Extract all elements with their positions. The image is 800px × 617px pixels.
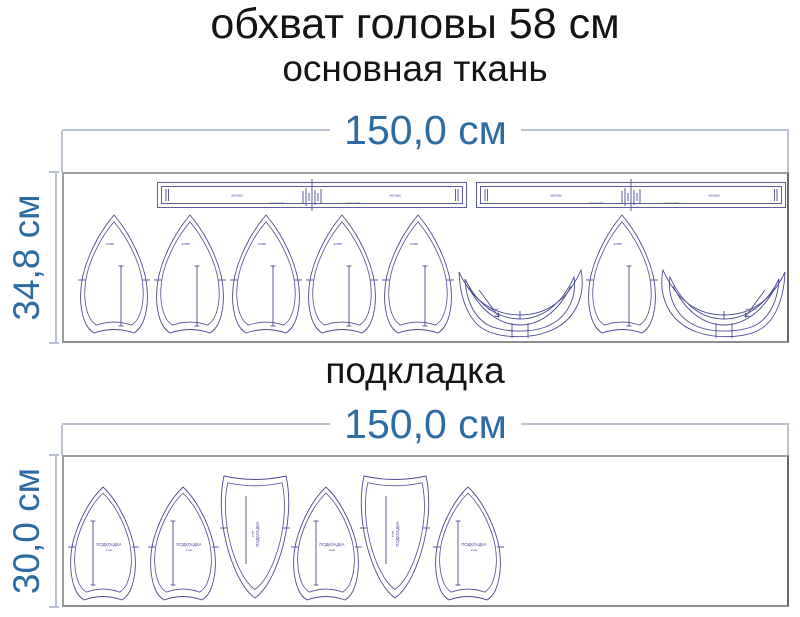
lining-wedge-piece: [433, 487, 504, 600]
extension-line: [61, 131, 63, 172]
visor-piece: [459, 270, 582, 338]
width-dimension-main: 150,0 см: [62, 106, 789, 154]
lining-drawing: ПОДКЛАДКА клин клин ПОДКЛАДКА: [64, 457, 787, 605]
main-fabric-drawing: околыш околыш линия сгиба линия сгиба кл…: [64, 174, 787, 341]
wedge-piece: [154, 215, 226, 333]
width-dimension-lining-label: 150,0 см: [344, 401, 507, 448]
page-title: обхват головы 58 см: [45, 0, 785, 48]
height-dimension-main-line: [55, 172, 57, 343]
band-piece: [158, 179, 467, 211]
header: обхват головы 58 см основная ткань: [45, 0, 785, 90]
wedge-piece: [382, 215, 454, 333]
height-dimension-lining-line: [55, 455, 57, 607]
main-fabric-layout: околыш околыш линия сгиба линия сгиба кл…: [62, 172, 789, 343]
lining-crown-piece: [360, 476, 430, 598]
width-dimension-main-label: 150,0 см: [344, 107, 507, 154]
width-dimension-lining: 150,0 см: [62, 400, 789, 448]
visor-piece-mirrored: [662, 270, 785, 338]
dimension-line-left: [62, 129, 330, 131]
visor-label: козырек: [487, 307, 499, 311]
lining-crown-piece: [220, 476, 290, 598]
dimension-line-right: [521, 423, 789, 425]
extension-line: [61, 425, 63, 455]
lining-layout: ПОДКЛАДКА клин клин ПОДКЛАДКА: [62, 455, 789, 607]
pattern-sheet: обхват головы 58 см основная ткань 150,0…: [0, 0, 800, 617]
band-piece: [477, 179, 786, 211]
wedge-piece: [78, 215, 150, 333]
wedge-piece: [230, 215, 302, 333]
dimension-line-right: [521, 129, 789, 131]
wedge-piece: [586, 215, 658, 333]
visor-label: козырек: [745, 307, 757, 311]
lining-wedge-piece: [291, 487, 362, 600]
lining-wedge-piece: [68, 487, 139, 600]
height-dimension-main-label: 34,8 см: [6, 172, 48, 343]
section-main-fabric-title: основная ткань: [45, 48, 785, 89]
height-dimension-lining-label: 30,0 см: [6, 455, 48, 607]
lining-wedge-piece: [148, 487, 219, 600]
extension-line: [787, 131, 789, 172]
extension-line: [787, 425, 789, 455]
section-lining-title: подкладка: [45, 350, 785, 392]
wedge-piece: [306, 215, 378, 333]
dimension-line-left: [62, 423, 330, 425]
